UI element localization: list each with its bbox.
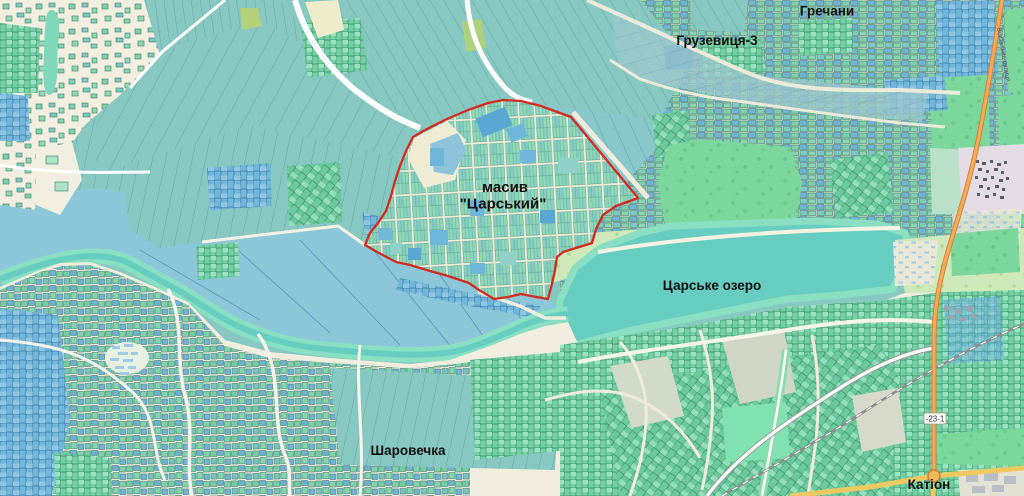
svg-text:Катіон: Катіон xyxy=(908,477,951,492)
svg-text:Царське озеро: Царське озеро xyxy=(663,278,762,293)
svg-text:"Царський": "Царський" xyxy=(460,196,547,213)
svg-text:Грузевиця-3: Грузевиця-3 xyxy=(676,33,758,48)
svg-text:Шаровечка: Шаровечка xyxy=(371,443,446,458)
svg-text:масив: масив xyxy=(482,179,528,196)
svg-text:-23-1: -23-1 xyxy=(926,415,945,424)
svg-text:Гречани: Гречани xyxy=(800,4,854,19)
